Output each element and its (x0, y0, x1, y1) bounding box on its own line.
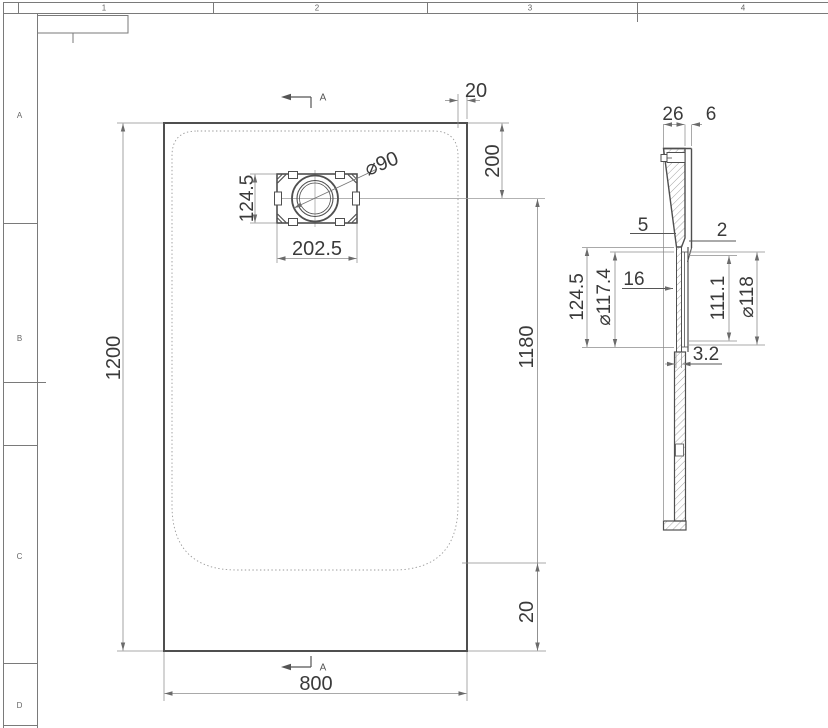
dim-plate-thickness: 3.2 (693, 344, 719, 365)
plan-view: ⌀90 124.5 202.5 1200 800 200 1180 (103, 80, 546, 701)
section-arrow-icon (281, 664, 291, 670)
revision-zone-box (38, 16, 129, 34)
grid-row-a: A (17, 111, 23, 120)
dim-neck: 16 (623, 269, 644, 290)
section-view: 26 6 5 2 124.5 ⌀117.4 16 111.1 ⌀118 3.2 (567, 104, 765, 530)
grid-column-2: 2 (315, 4, 320, 13)
tray-outline (164, 123, 467, 651)
dim-note-2: 2 (717, 220, 728, 241)
grid-column-4: 4 (741, 4, 746, 13)
rim-groove (667, 153, 685, 163)
dim-drain-width: 202.5 (292, 238, 342, 260)
section-label-top: A (320, 93, 327, 104)
section-label-bottom: A (320, 663, 327, 674)
grid-row-c: C (17, 552, 23, 561)
rim-hook (661, 155, 667, 162)
section-rim-wedge (664, 149, 686, 248)
section-foot (664, 521, 687, 530)
dim-tray-width: 800 (299, 673, 332, 695)
grid-column-3: 3 (528, 4, 533, 13)
technical-drawing: 1 2 3 4 A B C D (0, 0, 828, 728)
section-mark-bottom: A (281, 656, 327, 674)
dim-top-edge: 20 (465, 80, 487, 102)
dim-drain-height: 124.5 (237, 175, 258, 223)
grid-row-d: D (17, 701, 23, 710)
section-bottom-wall (675, 352, 686, 521)
wall-notch (676, 444, 684, 456)
dim-recess-outer: 124.5 (567, 273, 588, 321)
dim-drain-to-bottom: 1180 (516, 325, 538, 368)
dim-recess-inner-dia: ⌀117.4 (594, 268, 615, 326)
drawing-sheet: 1 2 3 4 A B C D (0, 0, 828, 728)
dim-tray-length: 1200 (103, 336, 125, 381)
grid-row-b: B (17, 334, 22, 343)
dim-lip-width: 6 (706, 104, 717, 125)
grid-column-1: 1 (102, 4, 107, 13)
dim-drain-diameter: ⌀90 (362, 147, 402, 180)
dim-depth: 111.1 (708, 276, 729, 321)
section-arrow-icon (281, 94, 291, 100)
dim-flange-dia: ⌀118 (737, 276, 758, 318)
dim-note-5: 5 (638, 215, 649, 236)
section-mark-top: A (281, 93, 327, 109)
section-recess-plate (677, 247, 682, 352)
dim-drain-offset: 200 (482, 144, 504, 177)
dim-bottom-edge: 20 (516, 601, 538, 623)
dim-rim-width: 26 (662, 104, 683, 125)
sheet-frame: 1 2 3 4 A B C D (4, 3, 828, 728)
